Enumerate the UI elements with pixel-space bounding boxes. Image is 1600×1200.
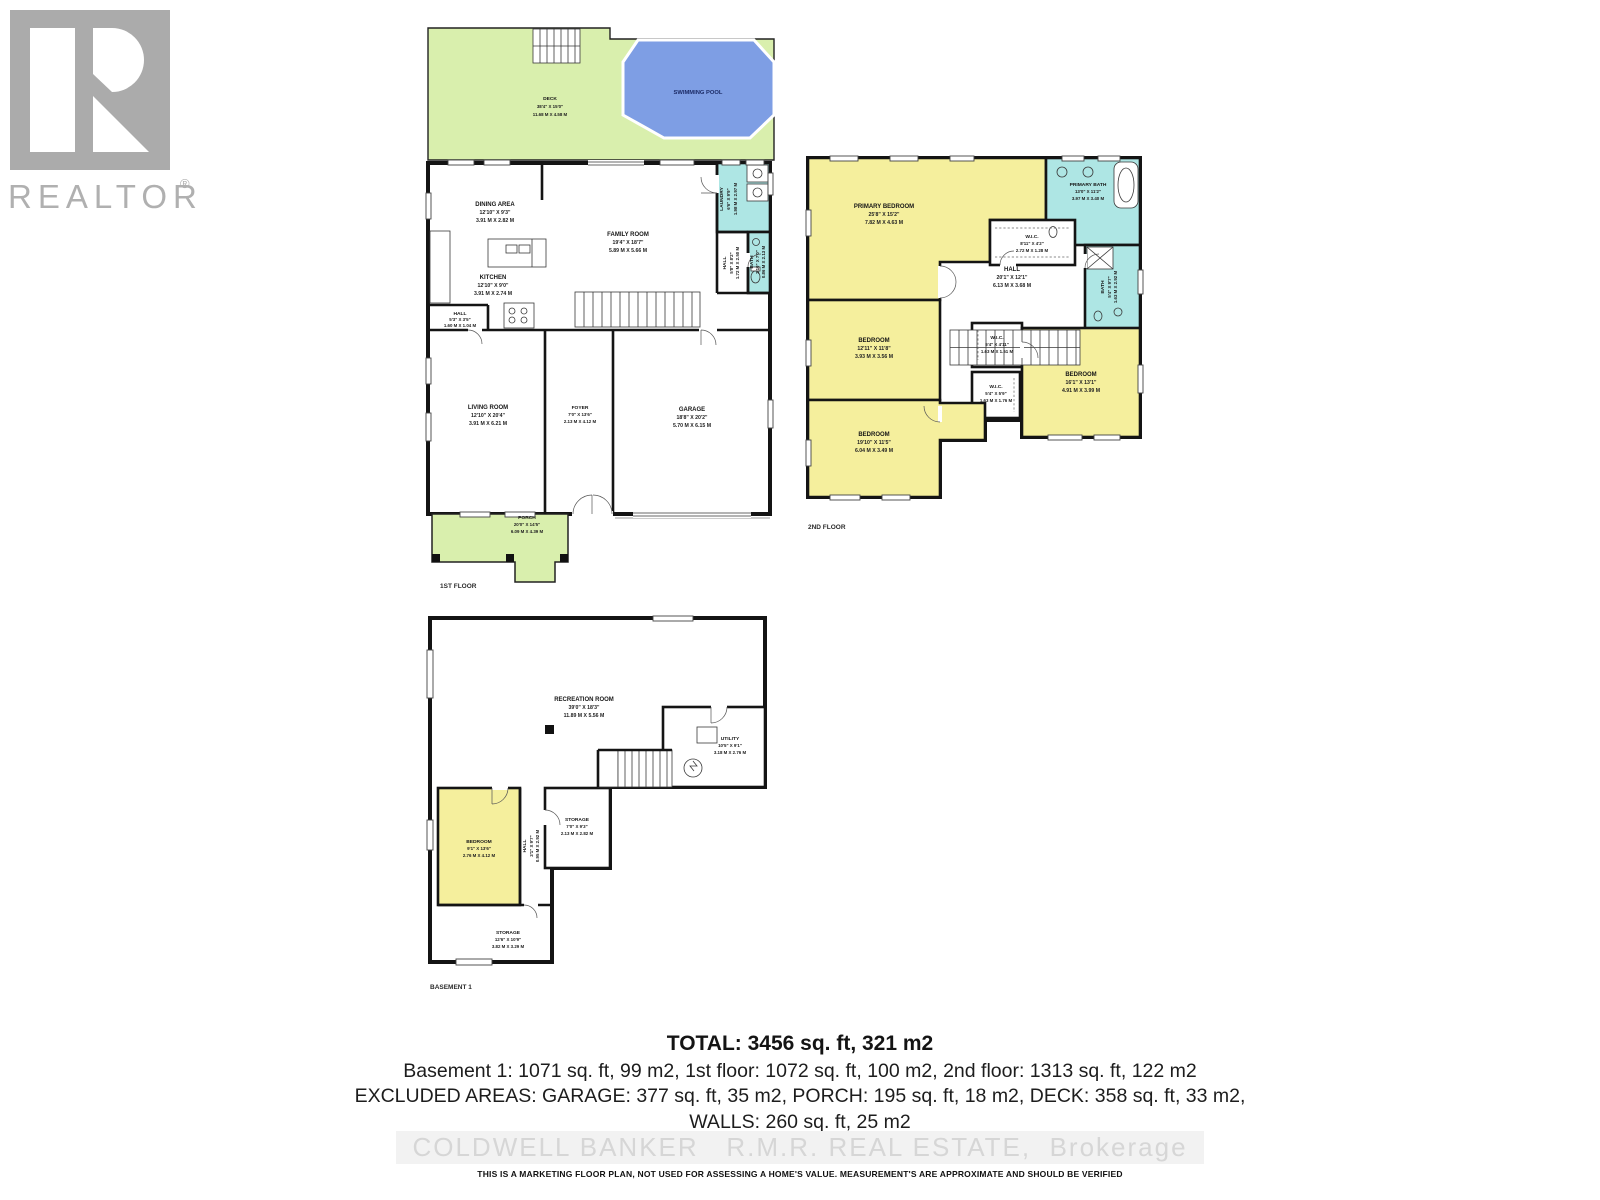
stairs-second-floor	[950, 330, 1080, 365]
svg-text:RECREATION ROOM: RECREATION ROOM	[554, 697, 614, 703]
svg-text:2.13 M X 4.12 M: 2.13 M X 4.12 M	[564, 419, 597, 424]
svg-text:3.97 M X 3.40 M: 3.97 M X 3.40 M	[1072, 196, 1105, 201]
garage-door-opening	[633, 510, 751, 518]
svg-text:2'10" X 7'0": 2'10" X 7'0"	[755, 250, 760, 274]
window	[653, 616, 693, 621]
svg-text:BEDROOM: BEDROOM	[858, 338, 889, 344]
porch-post	[432, 554, 440, 562]
window	[746, 160, 764, 165]
stairs-first-floor	[575, 292, 700, 327]
svg-text:6.09 M X 4.39 M: 6.09 M X 4.39 M	[511, 529, 544, 534]
room-label-basement-bedroom: BEDROOM 9'1" X 13'6" 2.76 M X 4.12 M	[463, 839, 496, 858]
floor-label-basement: BASEMENT 1	[430, 984, 472, 991]
svg-text:19'4" X 18'7": 19'4" X 18'7"	[612, 240, 644, 246]
room-label-storage2: STORAGE 12'6" X 10'9" 3.82 M X 3.29 M	[492, 930, 525, 949]
room-label-bedroom-right: BEDROOM 16'1" X 13'1" 4.91 M X 3.99 M	[1062, 372, 1100, 394]
window	[427, 820, 433, 850]
svg-text:W.I.C.: W.I.C.	[1025, 234, 1039, 240]
svg-text:1.98 M X 2.97 M: 1.98 M X 2.97 M	[733, 183, 738, 216]
linen-closet	[1087, 247, 1113, 269]
window	[426, 358, 431, 384]
svg-text:W.I.C.: W.I.C.	[990, 335, 1004, 341]
svg-text:3.91 M X 2.82 M: 3.91 M X 2.82 M	[476, 218, 514, 224]
svg-text:1.60 M X 1.04 M: 1.60 M X 1.04 M	[444, 323, 477, 328]
swimming-pool-shape	[623, 40, 774, 138]
window	[768, 400, 773, 428]
svg-text:UTILITY: UTILITY	[721, 736, 740, 742]
window	[426, 193, 431, 219]
garage-entry-opening	[699, 328, 717, 333]
realtor-logo-mark	[10, 10, 170, 170]
window	[882, 495, 910, 500]
basement-plan: RECREATION ROOM 39'0" X 18'3" 11.89 M X …	[420, 610, 770, 1000]
svg-text:3.18 M X 2.76 M: 3.18 M X 2.76 M	[714, 750, 747, 755]
window	[806, 340, 811, 366]
realtor-logo: REALTOR ®	[8, 8, 208, 223]
floor-label-2nd: 2ND FLOOR	[808, 524, 846, 531]
svg-text:12'10" X 9'0": 12'10" X 9'0"	[477, 283, 509, 289]
utility-shape	[663, 707, 765, 787]
window	[1048, 435, 1082, 440]
svg-text:DECK: DECK	[543, 96, 557, 102]
svg-text:3.82 M X 3.29 M: 3.82 M X 3.29 M	[492, 944, 525, 949]
svg-text:BEDROOM: BEDROOM	[1065, 372, 1096, 378]
svg-text:DINING AREA: DINING AREA	[475, 202, 515, 208]
room-label-swimming-pool: SWIMMING POOL	[674, 90, 723, 96]
kitchen-island	[488, 239, 546, 267]
svg-text:18'8" X 20'2": 18'8" X 20'2"	[676, 415, 708, 421]
bedroom-door-opening	[492, 786, 508, 790]
svg-text:LAUNDRY: LAUNDRY	[719, 186, 725, 210]
window	[722, 160, 740, 165]
window	[426, 413, 431, 441]
window	[456, 959, 492, 965]
svg-text:6.04 M X 3.49 M: 6.04 M X 3.49 M	[855, 448, 893, 454]
svg-text:1.63 M X 1.51 M: 1.63 M X 1.51 M	[981, 349, 1014, 354]
room-label-dining-area: DINING AREA 12'10" X 9'3" 3.91 M X 2.82 …	[475, 202, 515, 224]
svg-text:5'8" X 8'2": 5'8" X 8'2"	[729, 252, 734, 273]
window	[768, 173, 773, 195]
room-label-kitchen: KITCHEN 12'10" X 9'0" 3.91 M X 2.74 M	[474, 275, 512, 297]
svg-text:STORAGE: STORAGE	[496, 930, 521, 936]
svg-text:11.68 M X 4.58 M: 11.68 M X 4.58 M	[533, 112, 568, 117]
bedroom-bottom-door-opening	[938, 406, 942, 422]
svg-text:10'5" X 9'1": 10'5" X 9'1"	[718, 743, 742, 748]
room-label-living-room: LIVING ROOM 12'10" X 20'4" 3.91 M X 6.21…	[468, 405, 508, 427]
kitchen-counter	[430, 231, 450, 303]
registered-trademark-icon: ®	[180, 176, 190, 191]
window	[830, 495, 860, 500]
svg-text:KITCHEN: KITCHEN	[480, 275, 507, 281]
window	[1138, 270, 1143, 294]
window	[1062, 156, 1084, 161]
svg-text:5'4" X 9'7": 5'4" X 9'7"	[1107, 276, 1112, 297]
svg-text:1.63 M X 1.76 M: 1.63 M X 1.76 M	[980, 398, 1013, 403]
svg-text:12'6" X 10'9": 12'6" X 10'9"	[495, 937, 521, 942]
svg-text:HALL: HALL	[1004, 267, 1020, 273]
svg-text:12'10" X 9'3": 12'10" X 9'3"	[479, 210, 511, 216]
window	[460, 512, 490, 517]
svg-text:FAMILY ROOM: FAMILY ROOM	[607, 232, 649, 238]
utility-door-opening	[711, 705, 727, 709]
svg-text:W.I.C.: W.I.C.	[989, 384, 1003, 390]
svg-text:39'0" X 18'3": 39'0" X 18'3"	[568, 705, 600, 711]
svg-text:20'0" X 14'5": 20'0" X 14'5"	[514, 522, 540, 527]
svg-text:PORCH: PORCH	[518, 515, 536, 521]
svg-text:BEDROOM: BEDROOM	[858, 432, 889, 438]
room-label-family-room: FAMILY ROOM 19'4" X 18'7" 5.89 M X 5.66 …	[607, 232, 649, 254]
svg-text:PRIMARY BATH: PRIMARY BATH	[1070, 182, 1107, 188]
second-floor-plan: PRIMARY BEDROOM 25'8" X 15'2" 7.82 M X 4…	[800, 150, 1145, 540]
realtor-wordmark: REALTOR	[8, 178, 203, 215]
window	[830, 156, 858, 161]
svg-text:5'4" X 4'11": 5'4" X 4'11"	[985, 342, 1009, 347]
svg-text:7'0" X 9'3": 7'0" X 9'3"	[566, 824, 587, 829]
svg-text:25'8" X 15'2": 25'8" X 15'2"	[868, 212, 900, 218]
window	[1094, 435, 1120, 440]
porch-shape	[432, 514, 568, 582]
stairs-basement	[598, 750, 672, 787]
deck-stairs	[533, 29, 580, 63]
svg-text:7.82 M X 4.63 M: 7.82 M X 4.63 M	[865, 220, 903, 226]
summary-block: TOTAL: 3456 sq. ft, 321 m2 Basement 1: 1…	[0, 1032, 1600, 1179]
porch-post	[506, 554, 514, 562]
svg-text:4.91 M X 3.99 M: 4.91 M X 3.99 M	[1062, 388, 1100, 394]
svg-text:38'4" X 15'0": 38'4" X 15'0"	[537, 104, 563, 109]
svg-text:2.13 M X 2.82 M: 2.13 M X 2.82 M	[561, 831, 594, 836]
svg-text:2.76 M X 4.12 M: 2.76 M X 4.12 M	[463, 853, 496, 858]
porch-area	[432, 514, 770, 582]
svg-text:6.13 M X 3.68 M: 6.13 M X 3.68 M	[993, 283, 1031, 289]
porch-post	[560, 554, 568, 562]
summary-floors-line: Basement 1: 1071 sq. ft, 99 m2, 1st floo…	[0, 1059, 1600, 1084]
svg-text:20'1" X 12'1": 20'1" X 12'1"	[996, 275, 1028, 281]
disclaimer-text: THIS IS A MARKETING FLOOR PLAN, NOT USED…	[0, 1169, 1600, 1179]
bedroom-bottom-shape	[808, 400, 985, 497]
bedroom-right-door-opening	[1020, 342, 1024, 358]
deck-area: DECK 38'4" X 15'0" 11.68 M X 4.58 M SWIM…	[428, 28, 774, 160]
svg-text:1.72 M X 2.50 M: 1.72 M X 2.50 M	[735, 247, 740, 280]
svg-text:BEDROOM: BEDROOM	[466, 839, 492, 845]
front-door-opening	[572, 511, 613, 518]
svg-text:5.70 M X 6.15 M: 5.70 M X 6.15 M	[673, 423, 711, 429]
window	[806, 210, 811, 236]
svg-text:13'0" X 11'2": 13'0" X 11'2"	[1075, 189, 1101, 194]
svg-text:5'3" X 3'5": 5'3" X 3'5"	[449, 317, 470, 322]
svg-text:HALL: HALL	[722, 256, 728, 269]
support-post	[545, 725, 554, 734]
svg-text:LIVING ROOM: LIVING ROOM	[468, 405, 508, 411]
hall-door-opening	[468, 328, 482, 333]
svg-text:2.72 M X 1.28 M: 2.72 M X 1.28 M	[1016, 248, 1049, 253]
svg-text:3.93 M X 3.56 M: 3.93 M X 3.56 M	[855, 354, 893, 360]
svg-text:3.91 M X 6.21 M: 3.91 M X 6.21 M	[469, 421, 507, 427]
room-label-bedroom-bottom: BEDROOM 19'10" X 11'5" 6.04 M X 3.49 M	[855, 432, 893, 454]
svg-text:3'1" X 9'7": 3'1" X 9'7"	[529, 835, 534, 856]
svg-text:HALL: HALL	[522, 839, 528, 852]
window	[806, 440, 811, 466]
svg-text:5.89 M X 5.66 M: 5.89 M X 5.66 M	[609, 248, 647, 254]
window	[1098, 156, 1120, 161]
window	[448, 160, 474, 165]
window	[484, 160, 510, 165]
svg-text:7'0" X 13'6": 7'0" X 13'6"	[568, 412, 592, 417]
svg-text:19'10" X 11'5": 19'10" X 11'5"	[857, 440, 891, 446]
window	[660, 160, 694, 165]
svg-text:12'11" X 11'8": 12'11" X 11'8"	[857, 346, 891, 352]
svg-text:16'1" X 13'1": 16'1" X 13'1"	[1065, 380, 1097, 386]
summary-excluded-line: EXCLUDED AREAS: GARAGE: 377 sq. ft, 35 m…	[0, 1084, 1600, 1109]
floor-label-1st: 1ST FLOOR	[440, 583, 477, 590]
window	[1138, 365, 1143, 393]
svg-text:GARAGE: GARAGE	[679, 407, 705, 413]
svg-text:BATH: BATH	[1100, 280, 1106, 294]
svg-text:9'1" X 13'6": 9'1" X 13'6"	[467, 846, 491, 851]
storage-door-opening	[543, 810, 547, 825]
window	[890, 156, 918, 161]
svg-text:6'6" X 9'9": 6'6" X 9'9"	[726, 188, 731, 209]
realtor-r-stem-gap	[30, 28, 75, 152]
svg-text:PRIMARY BEDROOM: PRIMARY BEDROOM	[854, 204, 914, 210]
svg-text:1.63 M X 2.92 M: 1.63 M X 2.92 M	[1113, 271, 1118, 304]
window	[427, 650, 433, 698]
svg-text:FOYER: FOYER	[572, 405, 589, 411]
svg-text:8'11" X 4'2": 8'11" X 4'2"	[1020, 241, 1044, 246]
svg-text:5'4" X 5'9": 5'4" X 5'9"	[985, 391, 1006, 396]
summary-total: TOTAL: 3456 sq. ft, 321 m2	[0, 1032, 1600, 1056]
laundry-door-opening	[715, 175, 719, 193]
room-label-bedroom-left: BEDROOM 12'11" X 11'8" 3.93 M X 3.56 M	[855, 338, 893, 360]
svg-text:3.91 M X 2.74 M: 3.91 M X 2.74 M	[474, 291, 512, 297]
kitchen-stove	[504, 303, 534, 328]
svg-text:11.89 M X 5.56 M: 11.89 M X 5.56 M	[564, 713, 605, 719]
brokerage-watermark: COLDWELL BANKER R.M.R. REAL ESTATE, Brok…	[396, 1131, 1203, 1164]
first-floor-plan: DECK 38'4" X 15'0" 11.68 M X 4.58 M SWIM…	[420, 15, 780, 600]
primary-door-opening	[938, 266, 942, 298]
svg-text:STORAGE: STORAGE	[565, 817, 590, 823]
svg-text:12'10" X 20'4": 12'10" X 20'4"	[471, 413, 505, 419]
svg-text:0.95 M X 2.92 M: 0.95 M X 2.92 M	[535, 830, 540, 863]
window	[950, 156, 974, 161]
svg-text:0.86 M X 2.13 M: 0.86 M X 2.13 M	[761, 246, 766, 279]
